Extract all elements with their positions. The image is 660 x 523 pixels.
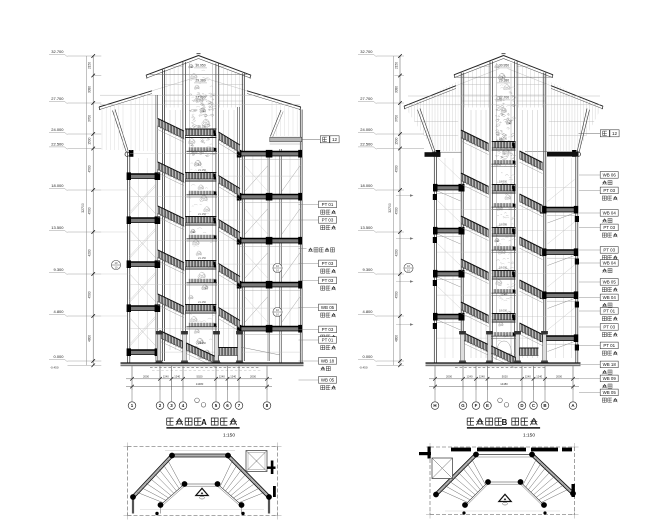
svg-text:27.700: 27.700 bbox=[195, 96, 205, 100]
svg-text:PT 03: PT 03 bbox=[322, 261, 334, 266]
svg-text:1240: 1240 bbox=[525, 374, 531, 378]
svg-text:PT 01: PT 01 bbox=[603, 309, 615, 314]
svg-text:18.000: 18.000 bbox=[51, 183, 64, 188]
svg-text:A: A bbox=[201, 418, 207, 427]
svg-text:21.150: 21.150 bbox=[198, 341, 206, 345]
svg-text:18.000: 18.000 bbox=[499, 223, 507, 227]
svg-text:WB 05: WB 05 bbox=[321, 378, 335, 383]
svg-text:32700: 32700 bbox=[81, 203, 85, 213]
svg-text:PT 03: PT 03 bbox=[603, 225, 615, 230]
svg-text:29.380: 29.380 bbox=[195, 79, 205, 83]
svg-text:32.700: 32.700 bbox=[360, 49, 373, 54]
svg-text:-0.450: -0.450 bbox=[359, 366, 368, 370]
svg-text:24.000: 24.000 bbox=[360, 127, 373, 132]
svg-text:PT 01: PT 01 bbox=[322, 202, 334, 207]
svg-text:PT 03: PT 03 bbox=[603, 325, 615, 330]
svg-text:4800: 4800 bbox=[88, 335, 92, 342]
svg-text:2150: 2150 bbox=[395, 62, 399, 69]
svg-text:H: H bbox=[433, 403, 436, 408]
svg-text:WB 05: WB 05 bbox=[603, 390, 617, 395]
svg-text:WB 06: WB 06 bbox=[603, 173, 617, 178]
svg-text:F: F bbox=[475, 403, 478, 408]
svg-text:4200: 4200 bbox=[88, 249, 92, 256]
svg-text:WB 04: WB 04 bbox=[603, 261, 617, 266]
svg-text:WB 09: WB 09 bbox=[603, 376, 617, 381]
svg-text:12: 12 bbox=[332, 137, 338, 142]
svg-text:18.000: 18.000 bbox=[499, 266, 507, 270]
svg-text:21.150: 21.150 bbox=[198, 300, 206, 304]
svg-text:PT 03: PT 03 bbox=[322, 278, 334, 283]
svg-text:1240: 1240 bbox=[174, 374, 180, 378]
svg-text:4.800: 4.800 bbox=[362, 309, 373, 314]
svg-text:3700: 3700 bbox=[395, 115, 399, 122]
svg-text:13.500: 13.500 bbox=[51, 225, 64, 230]
svg-text:2150: 2150 bbox=[88, 62, 92, 69]
svg-text:18.000: 18.000 bbox=[499, 137, 507, 141]
svg-text:9.300: 9.300 bbox=[53, 267, 64, 272]
svg-text:21.150: 21.150 bbox=[198, 124, 206, 128]
svg-text:4.800: 4.800 bbox=[53, 309, 64, 314]
svg-text:30.950: 30.950 bbox=[195, 64, 205, 68]
svg-text:-0.450: -0.450 bbox=[50, 366, 59, 370]
svg-text:WB 18: WB 18 bbox=[321, 359, 335, 364]
svg-text:4500: 4500 bbox=[395, 165, 399, 172]
svg-text:WB 18: WB 18 bbox=[603, 362, 617, 367]
svg-text:1500: 1500 bbox=[395, 137, 399, 144]
svg-text:27.700: 27.700 bbox=[51, 96, 64, 101]
svg-text:18.000: 18.000 bbox=[360, 183, 373, 188]
svg-text:WB 04: WB 04 bbox=[603, 211, 617, 216]
svg-text:PT 03: PT 03 bbox=[603, 188, 615, 193]
svg-text:G: G bbox=[461, 403, 465, 408]
svg-text:1500: 1500 bbox=[88, 137, 92, 144]
svg-text:14480: 14480 bbox=[196, 382, 204, 386]
svg-text:4500: 4500 bbox=[395, 207, 399, 214]
svg-text:9.300: 9.300 bbox=[362, 267, 373, 272]
svg-text:18.000: 18.000 bbox=[499, 309, 507, 313]
svg-text:4500: 4500 bbox=[88, 207, 92, 214]
svg-text:0.000: 0.000 bbox=[362, 354, 373, 359]
svg-text:21.150: 21.150 bbox=[198, 212, 206, 216]
svg-text:12: 12 bbox=[612, 131, 618, 136]
svg-text:WB 05: WB 05 bbox=[321, 305, 335, 310]
svg-text:21.150: 21.150 bbox=[198, 168, 206, 172]
svg-text:3080: 3080 bbox=[88, 86, 92, 93]
svg-text:22.500: 22.500 bbox=[51, 142, 64, 147]
svg-text:E: E bbox=[486, 403, 489, 408]
svg-text:1240: 1240 bbox=[219, 374, 225, 378]
svg-text:D: D bbox=[520, 403, 523, 408]
svg-text:PT 01: PT 01 bbox=[603, 343, 615, 348]
svg-text:30.950: 30.950 bbox=[499, 64, 509, 68]
svg-text:22.500: 22.500 bbox=[360, 142, 373, 147]
svg-text:24.000: 24.000 bbox=[51, 127, 64, 132]
svg-text:4800: 4800 bbox=[395, 335, 399, 342]
svg-text:14480: 14480 bbox=[500, 382, 508, 386]
svg-text:PT 03: PT 03 bbox=[322, 327, 334, 332]
svg-text:32700: 32700 bbox=[388, 203, 392, 213]
svg-text:1:150: 1:150 bbox=[223, 432, 235, 438]
svg-text:WB 05: WB 05 bbox=[603, 280, 617, 285]
svg-text:27.700: 27.700 bbox=[499, 96, 509, 100]
svg-text:B: B bbox=[543, 403, 546, 408]
svg-text:32.700: 32.700 bbox=[51, 49, 64, 54]
svg-text:0.000: 0.000 bbox=[53, 354, 64, 359]
svg-text:13.500: 13.500 bbox=[360, 225, 373, 230]
svg-text:4500: 4500 bbox=[88, 291, 92, 298]
svg-text:2000: 2000 bbox=[446, 374, 452, 378]
svg-text:3080: 3080 bbox=[395, 86, 399, 93]
svg-text:1240: 1240 bbox=[536, 374, 542, 378]
svg-text:29.380: 29.380 bbox=[499, 79, 509, 83]
svg-text:1:150: 1:150 bbox=[523, 432, 535, 438]
svg-text:3700: 3700 bbox=[88, 115, 92, 122]
svg-text:4500: 4500 bbox=[395, 291, 399, 298]
svg-text:4200: 4200 bbox=[395, 249, 399, 256]
svg-text:2000: 2000 bbox=[250, 374, 256, 378]
svg-text:PT 03: PT 03 bbox=[322, 218, 334, 223]
svg-text:1240: 1240 bbox=[230, 374, 236, 378]
svg-text:PT 01: PT 01 bbox=[322, 338, 334, 343]
svg-text:WB 04: WB 04 bbox=[603, 295, 617, 300]
svg-text:5020: 5020 bbox=[502, 374, 508, 378]
svg-text:1240: 1240 bbox=[479, 374, 485, 378]
svg-text:1240: 1240 bbox=[467, 374, 473, 378]
svg-text:2000: 2000 bbox=[143, 374, 149, 378]
svg-text:B: B bbox=[502, 418, 508, 427]
svg-text:18.000: 18.000 bbox=[499, 180, 507, 184]
svg-text:1240: 1240 bbox=[163, 374, 169, 378]
svg-text:5020: 5020 bbox=[197, 374, 203, 378]
svg-text:27.700: 27.700 bbox=[360, 96, 373, 101]
svg-text:4500: 4500 bbox=[88, 165, 92, 172]
svg-text:PT 03: PT 03 bbox=[603, 248, 615, 253]
svg-text:21.150: 21.150 bbox=[198, 256, 206, 260]
svg-text:2000: 2000 bbox=[556, 374, 562, 378]
